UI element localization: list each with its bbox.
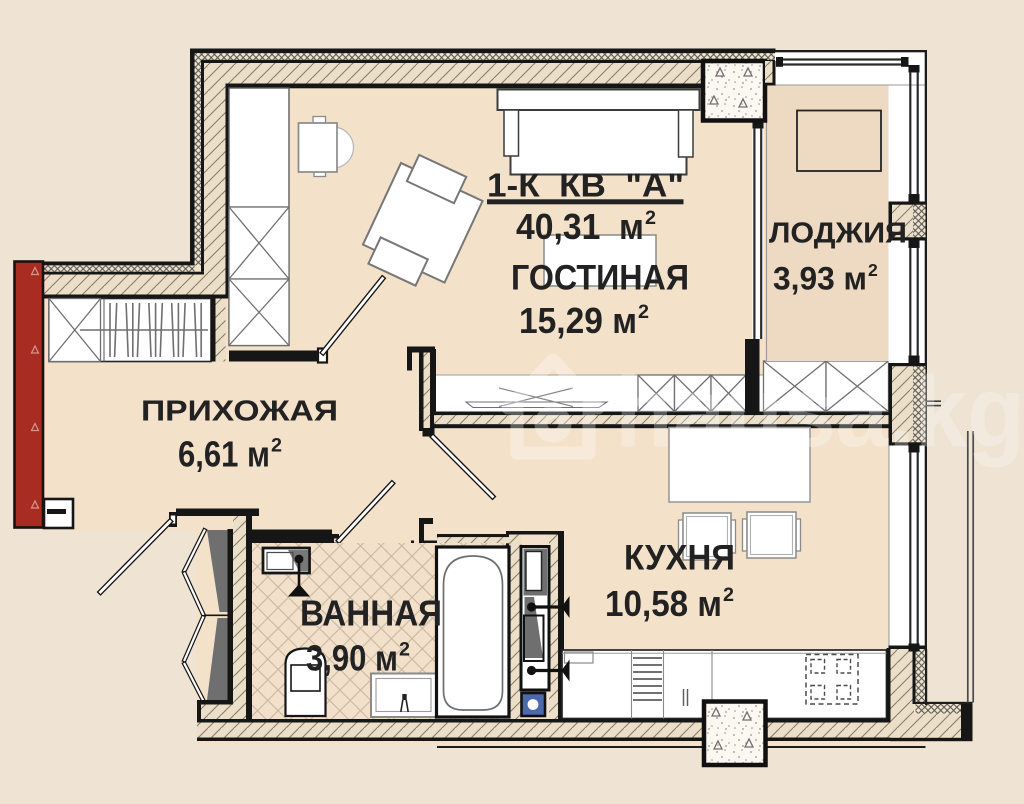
svg-text:КУХНЯ: КУХНЯ (624, 539, 735, 578)
svg-text:ПРИХОЖАЯ: ПРИХОЖАЯ (141, 396, 338, 428)
svg-text:3,90 м: 3,90 м (306, 638, 398, 679)
svg-text:2: 2 (645, 207, 656, 229)
svg-text:15,29 м: 15,29 м (519, 300, 637, 341)
svg-text:2: 2 (399, 638, 410, 660)
svg-text:3,93 м: 3,93 м (773, 261, 867, 297)
svg-text:10,58 м: 10,58 м (605, 583, 722, 624)
svg-text:2: 2 (638, 301, 649, 323)
svg-text:ВАННАЯ: ВАННАЯ (300, 593, 442, 634)
svg-text:1-К КВ "А": 1-К КВ "А" (487, 167, 684, 204)
svg-text:ГОСТИНАЯ: ГОСТИНАЯ (511, 259, 689, 298)
svg-text:2: 2 (868, 260, 878, 280)
svg-text:ЛОДЖИЯ: ЛОДЖИЯ (769, 218, 907, 250)
svg-text:hausa.kg: hausa.kg (615, 356, 1024, 468)
svg-text:2: 2 (723, 584, 734, 606)
svg-text:40,31 м: 40,31 м (516, 206, 644, 247)
svg-text:2: 2 (271, 434, 282, 456)
svg-text:6,61 м: 6,61 м (178, 434, 270, 475)
